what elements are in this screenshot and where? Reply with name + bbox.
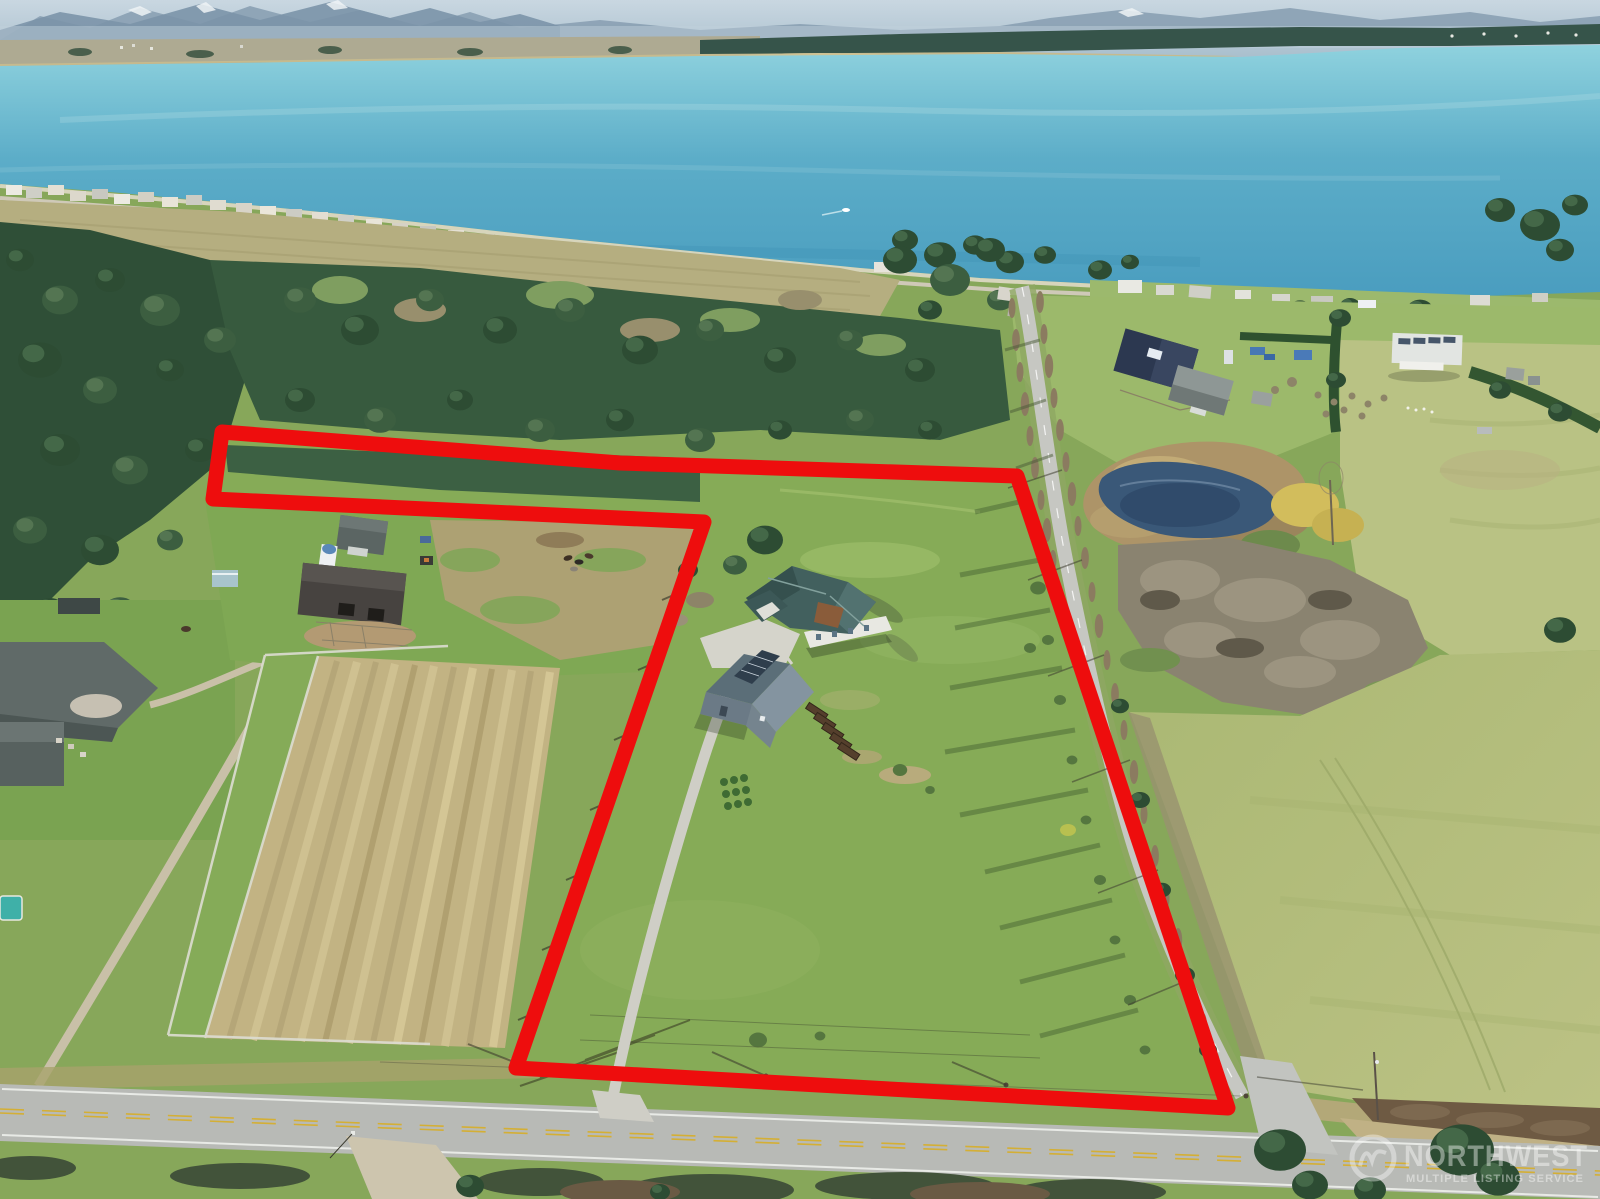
garden-patch — [720, 774, 752, 810]
horse — [181, 626, 191, 632]
trailer — [1224, 350, 1233, 364]
rv — [1358, 300, 1376, 308]
blue-shed — [212, 570, 238, 587]
watermark-text-line1: NORTHWEST — [1404, 1140, 1588, 1173]
neighbor-barn — [298, 563, 407, 626]
pool — [0, 896, 22, 920]
aerial-photo-canvas: NORTHWEST MULTIPLE LISTING SERVICE — [0, 0, 1600, 1199]
aerial-photo: NORTHWEST MULTIPLE LISTING SERVICE — [0, 0, 1600, 1199]
watermark-text-line2: MULTIPLE LISTING SERVICE — [1406, 1173, 1584, 1185]
